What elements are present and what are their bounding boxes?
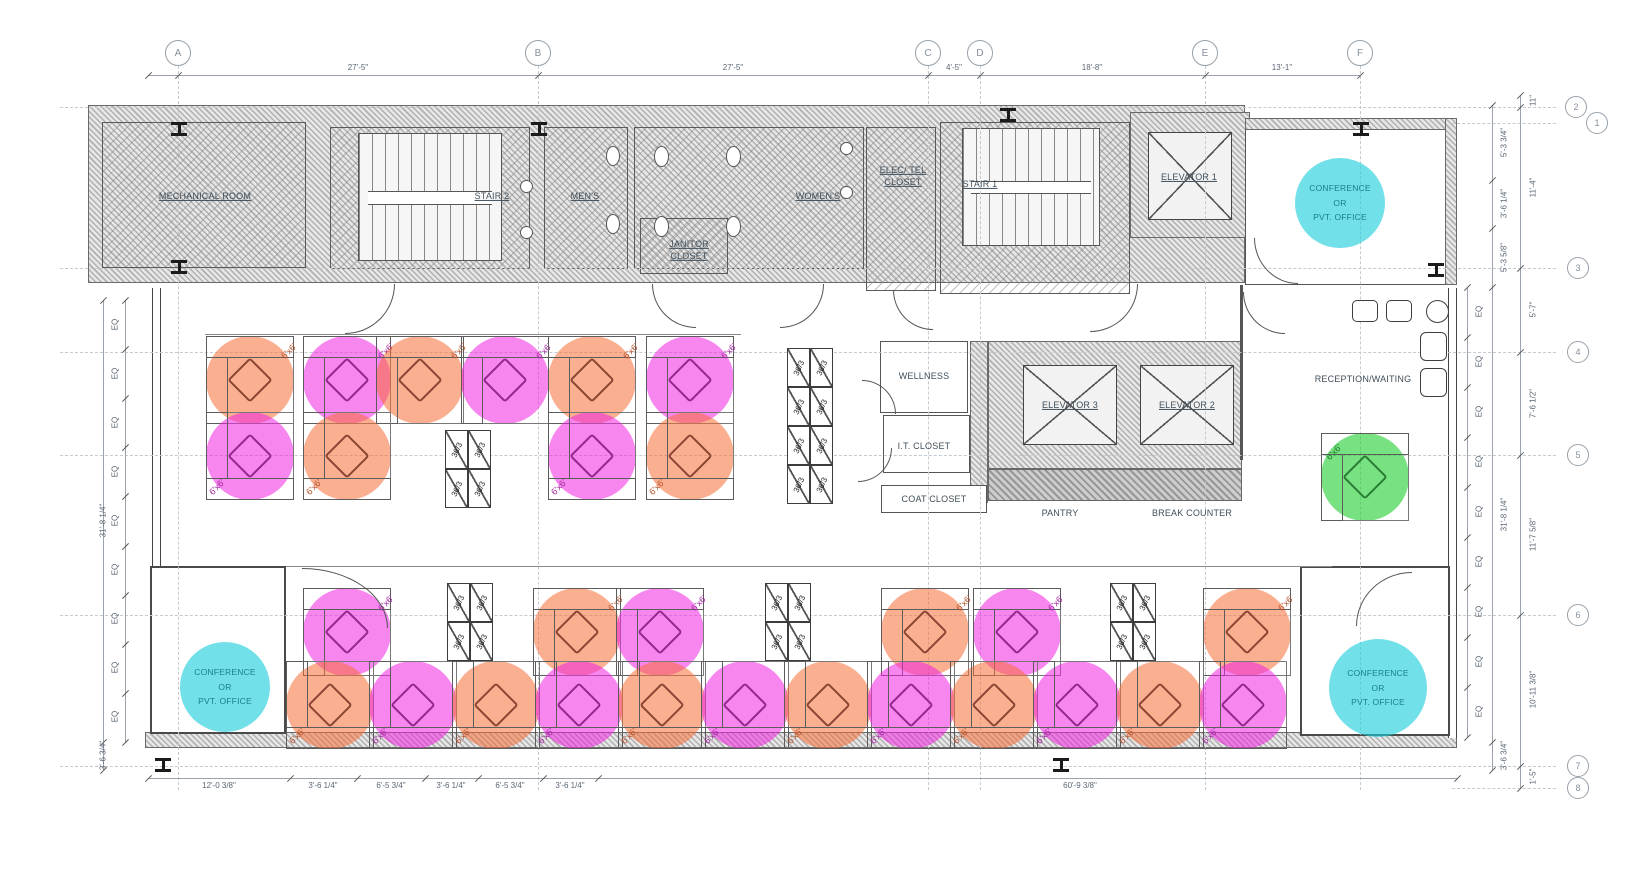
workstation-orange: 6'x6' bbox=[784, 661, 872, 749]
cabinet-size-label: 36/3 bbox=[791, 476, 806, 494]
conference-pvt-office-circle: CONFERENCEORPVT. OFFICE bbox=[1295, 158, 1385, 248]
upper-cluster-line bbox=[205, 334, 741, 335]
file-cabinet: 36/3 bbox=[445, 430, 468, 469]
right-mid-dimension-line bbox=[1492, 105, 1493, 770]
file-cabinet: 36/3 bbox=[468, 430, 491, 469]
file-cabinet: 36/3 bbox=[810, 465, 833, 504]
file-cabinet: 36/3 bbox=[810, 348, 833, 387]
cabinet-size-label: 36/3 bbox=[449, 480, 464, 498]
grid-bubble-6: 6 bbox=[1567, 604, 1589, 626]
stool bbox=[1352, 300, 1378, 322]
stool bbox=[1386, 300, 1412, 322]
workstation-magenta: 6'x6' bbox=[701, 661, 789, 749]
conference-pvt-office-circle: CONFERENCEORPVT. OFFICE bbox=[180, 642, 270, 732]
eq-dimension: EQ bbox=[1475, 597, 1484, 627]
grid-line-3 bbox=[60, 268, 1556, 269]
door-swing bbox=[652, 284, 696, 328]
eq-dimension: EQ bbox=[1475, 647, 1484, 677]
file-cabinet: 36/3 bbox=[447, 583, 470, 622]
cabinet-size-label: 36/3 bbox=[791, 359, 806, 377]
desk-surface bbox=[1116, 661, 1138, 728]
conference-label-line: OR bbox=[1333, 196, 1346, 210]
grid-bubble-2: 2 bbox=[1565, 96, 1587, 118]
workstation-orange: 6'x6' bbox=[646, 412, 734, 500]
grid-line-2 bbox=[60, 107, 1556, 108]
file-cabinet: 36/3 bbox=[447, 622, 470, 661]
room-label-mens: MEN'S bbox=[571, 190, 600, 202]
file-cabinet: 36/3 bbox=[1133, 583, 1156, 622]
desk-surface bbox=[535, 661, 557, 728]
cabinet-size-label: 36/3 bbox=[814, 437, 829, 455]
cabinet-size-label: 36/3 bbox=[472, 441, 487, 459]
cabinet-size-label: 36/3 bbox=[451, 594, 466, 612]
steel-column-icon bbox=[1428, 263, 1444, 277]
room-label-pantry: PANTRY bbox=[1042, 507, 1079, 519]
workstation-orange: 6'x6' bbox=[950, 661, 1038, 749]
right-mid-dimension: 31'-8 1/4" bbox=[1500, 480, 1509, 550]
steel-column-icon bbox=[155, 758, 171, 772]
workstation-magenta: 6'x6' bbox=[548, 412, 636, 500]
steel-column-icon bbox=[171, 260, 187, 274]
cabinet-size-label: 36/3 bbox=[474, 594, 489, 612]
conference-label-line: PVT. OFFICE bbox=[1351, 695, 1405, 709]
desk-surface bbox=[701, 661, 723, 728]
eq-dimension: EQ bbox=[111, 309, 120, 339]
right-outer-dimension-line bbox=[1520, 95, 1521, 788]
file-cabinet: 36/3 bbox=[470, 622, 493, 661]
grid-bubble-1: 1 bbox=[1586, 112, 1608, 134]
desk-surface bbox=[784, 661, 806, 728]
conference-label-line: OR bbox=[1371, 681, 1384, 695]
room-label-elevator3: ELEVATOR 3 bbox=[1042, 399, 1098, 411]
conference-pvt-office-circle: CONFERENCEORPVT. OFFICE bbox=[1329, 639, 1427, 737]
workstation-magenta: 6'x6' bbox=[535, 661, 623, 749]
workstation-orange: 6'x6' bbox=[376, 336, 464, 424]
grid-line-A bbox=[178, 66, 179, 790]
grid-bubble-7: 7 bbox=[1567, 755, 1589, 777]
left-eq-line bbox=[125, 300, 126, 742]
right-outer-dimension: 7'-6 1/2" bbox=[1529, 369, 1538, 439]
desk-surface bbox=[618, 661, 640, 728]
eq-dimension: EQ bbox=[1475, 397, 1484, 427]
grid-bubble-3: 3 bbox=[1567, 257, 1589, 279]
conference-label-line: CONFERENCE bbox=[1309, 181, 1371, 195]
room-label-wellness: WELLNESS bbox=[899, 370, 950, 382]
workstation-orange: 6'x6' bbox=[618, 661, 706, 749]
bottom-cluster-line bbox=[286, 566, 1332, 567]
sink-icon bbox=[840, 186, 853, 199]
desk-surface bbox=[950, 661, 972, 728]
steel-column-icon bbox=[531, 122, 547, 136]
eq-dimension: EQ bbox=[1475, 347, 1484, 377]
workstation-magenta: 6'x6' bbox=[646, 336, 734, 424]
conference-label-line: PVT. OFFICE bbox=[1313, 210, 1367, 224]
workstation-orange: 6'x6' bbox=[548, 336, 636, 424]
file-cabinet: 36/3 bbox=[1110, 583, 1133, 622]
toilet-icon bbox=[726, 146, 741, 167]
room-label-it-closet: I.T. CLOSET bbox=[898, 440, 951, 452]
sink-icon bbox=[520, 180, 533, 193]
conference-label-line: OR bbox=[218, 680, 231, 694]
eq-dimension: EQ bbox=[111, 358, 120, 388]
eq-dimension: EQ bbox=[1475, 497, 1484, 527]
cabinet-size-label: 36/3 bbox=[814, 398, 829, 416]
cabinet-size-label: 36/3 bbox=[451, 633, 466, 651]
elec-tel-closet-room bbox=[866, 127, 936, 291]
eq-dimension: EQ bbox=[1475, 447, 1484, 477]
workstation-orange: 6'x6' bbox=[452, 661, 540, 749]
desk-surface bbox=[1199, 661, 1221, 728]
conference-label-line: CONFERENCE bbox=[1347, 666, 1409, 680]
desk-surface bbox=[206, 412, 228, 479]
toilet-icon bbox=[726, 216, 741, 237]
door-swing bbox=[345, 284, 395, 334]
lounge-chair bbox=[1420, 368, 1447, 397]
steel-column-icon bbox=[1000, 108, 1016, 122]
cabinet-size-label: 36/3 bbox=[769, 633, 784, 651]
room-label-mechanical: MECHANICAL ROOM bbox=[159, 190, 251, 202]
file-cabinet: 36/3 bbox=[765, 622, 788, 661]
right-eq-line bbox=[1467, 287, 1468, 737]
eq-dimension: EQ bbox=[111, 407, 120, 437]
right-outer-dimension: 5'-7" bbox=[1529, 275, 1538, 345]
file-cabinet: 36/3 bbox=[810, 426, 833, 465]
conference-label-line: PVT. OFFICE bbox=[198, 694, 252, 708]
eq-dimension: EQ bbox=[1475, 547, 1484, 577]
right-outer-dimension: 11'-7 5/8" bbox=[1529, 500, 1538, 570]
bottom-dimension: 3'-6 1/4" bbox=[525, 781, 615, 790]
grid-bubble-E: E bbox=[1192, 40, 1218, 66]
toilet-icon bbox=[654, 216, 669, 237]
desk-surface bbox=[369, 661, 391, 728]
conference-tr-right-wall bbox=[1445, 118, 1457, 285]
file-cabinet: 36/3 bbox=[1110, 622, 1133, 661]
door-swing bbox=[1243, 292, 1285, 334]
desk-surface bbox=[548, 412, 570, 479]
grid-bubble-B: B bbox=[525, 40, 551, 66]
steel-column-icon bbox=[1053, 758, 1069, 772]
eq-dimension: EQ bbox=[111, 456, 120, 486]
top-dimension: 4'-5" bbox=[909, 63, 999, 72]
desk-surface bbox=[646, 412, 668, 479]
grid-bubble-4: 4 bbox=[1567, 341, 1589, 363]
cabinet-size-label: 36/3 bbox=[1114, 594, 1129, 612]
desk-surface bbox=[452, 661, 474, 728]
workstation-orange: 6'x6' bbox=[303, 412, 391, 500]
workstation-magenta: 6'x6' bbox=[1199, 661, 1287, 749]
door-swing bbox=[893, 290, 933, 330]
top-dimension: 13'-1" bbox=[1237, 63, 1327, 72]
reception-left-wall bbox=[1240, 285, 1243, 460]
workstation-orange: 6'x6' bbox=[286, 661, 374, 749]
eq-dimension: EQ bbox=[111, 555, 120, 585]
workstation-magenta: 6'x6' bbox=[461, 336, 549, 424]
desk-surface bbox=[1033, 661, 1055, 728]
top-dimension: 27'-5" bbox=[313, 63, 403, 72]
workstation-magenta: 6'x6' bbox=[369, 661, 457, 749]
file-cabinet: 36/3 bbox=[810, 387, 833, 426]
file-cabinet: 36/3 bbox=[468, 469, 491, 508]
grid-bubble-8: 8 bbox=[1567, 777, 1589, 799]
door-swing bbox=[302, 568, 388, 628]
eq-dimension: EQ bbox=[111, 702, 120, 732]
bottom-dimension: 12'-0 3/8" bbox=[174, 781, 264, 790]
desk-surface bbox=[303, 412, 325, 479]
toilet-icon bbox=[606, 146, 620, 166]
grid-bubble-F: F bbox=[1347, 40, 1373, 66]
top-dimension: 18'-8" bbox=[1047, 63, 1137, 72]
desk-surface bbox=[461, 357, 483, 424]
toilet-icon bbox=[606, 214, 620, 234]
room-label-elevator1: ELEVATOR 1 bbox=[1161, 171, 1217, 183]
floor-plan: MECHANICAL ROOM STAIR 2 MEN'S JANITOR CL… bbox=[0, 0, 1630, 888]
cabinet-size-label: 36/3 bbox=[769, 594, 784, 612]
toilet-icon bbox=[654, 146, 669, 167]
cabinet-size-label: 36/3 bbox=[792, 633, 807, 651]
conference-label-line: CONFERENCE bbox=[194, 665, 256, 679]
cabinet-size-label: 36/3 bbox=[449, 441, 464, 459]
file-cabinet: 36/3 bbox=[445, 469, 468, 508]
sink-icon bbox=[840, 142, 853, 155]
steel-column-icon bbox=[1353, 122, 1369, 136]
workstation-orange: 6'x6' bbox=[1116, 661, 1204, 749]
file-cabinet: 36/3 bbox=[787, 387, 810, 426]
right-mid-dimension: 3'-6 3/4" bbox=[1500, 721, 1509, 791]
file-cabinet: 36/3 bbox=[765, 583, 788, 622]
workstation-magenta: 6'x6' bbox=[867, 661, 955, 749]
room-label-electel: ELEC/ TEL CLOSET bbox=[880, 164, 927, 188]
workstation-orange: 6'x6' bbox=[206, 336, 294, 424]
file-cabinet: 36/3 bbox=[470, 583, 493, 622]
door-swing bbox=[780, 284, 824, 328]
file-cabinet: 36/3 bbox=[788, 583, 811, 622]
room-label-elevator2: ELEVATOR 2 bbox=[1159, 399, 1215, 411]
left-overall-dimension: 3'-6 3/4" bbox=[99, 721, 108, 791]
desk-surface bbox=[286, 661, 308, 728]
room-label-stair2: STAIR 2 bbox=[475, 190, 510, 202]
cabinet-size-label: 36/3 bbox=[472, 480, 487, 498]
eq-dimension: EQ bbox=[111, 604, 120, 634]
desk-surface bbox=[1321, 454, 1343, 521]
workstation-magenta: 6'x6' bbox=[1033, 661, 1121, 749]
top-dimension: 27'-5" bbox=[688, 63, 778, 72]
top-dimension-line bbox=[148, 75, 1360, 76]
cabinet-size-label: 36/3 bbox=[1137, 633, 1152, 651]
bottom-dimension: 60'-9 3/8" bbox=[1035, 781, 1125, 790]
workstation-magenta: 6'x6' bbox=[206, 412, 294, 500]
cabinet-size-label: 36/3 bbox=[1137, 594, 1152, 612]
cabinet-size-label: 36/3 bbox=[474, 633, 489, 651]
file-cabinet: 36/3 bbox=[1133, 622, 1156, 661]
eq-dimension: EQ bbox=[1475, 697, 1484, 727]
right-mid-dimension: 5'-3 5/8" bbox=[1500, 223, 1509, 293]
eq-dimension: EQ bbox=[111, 653, 120, 683]
eq-dimension: EQ bbox=[111, 506, 120, 536]
round-table bbox=[1426, 300, 1449, 323]
lounge-chair bbox=[1420, 332, 1447, 361]
file-cabinet: 36/3 bbox=[787, 426, 810, 465]
room-label-reception: RECEPTION/WAITING bbox=[1315, 373, 1412, 385]
file-cabinet: 36/3 bbox=[787, 348, 810, 387]
cabinet-size-label: 36/3 bbox=[814, 359, 829, 377]
pantry-break-counter bbox=[988, 469, 1242, 501]
door-swing bbox=[1090, 284, 1138, 332]
room-label-womens: WOMEN'S bbox=[796, 190, 841, 202]
conference-tr-top-wall bbox=[1245, 118, 1457, 130]
right-outer-dimension: 10'-11 3/8" bbox=[1529, 655, 1538, 725]
desk-surface bbox=[867, 661, 889, 728]
right-mid-dimension: 5'-3 3/4" bbox=[1500, 108, 1509, 178]
eq-dimension: EQ bbox=[1475, 297, 1484, 327]
cabinet-size-label: 36/3 bbox=[814, 476, 829, 494]
right-outer-dimension: 11" bbox=[1529, 66, 1538, 136]
steel-column-icon bbox=[171, 122, 187, 136]
grid-line-7 bbox=[60, 766, 1556, 767]
sink-icon bbox=[520, 226, 533, 239]
cabinet-size-label: 36/3 bbox=[791, 437, 806, 455]
door-swing bbox=[858, 448, 892, 482]
bottom-dimension-line bbox=[148, 778, 1457, 779]
file-cabinet: 36/3 bbox=[787, 465, 810, 504]
room-label-janitor: JANITOR CLOSET bbox=[669, 238, 709, 262]
cabinet-size-label: 36/3 bbox=[792, 594, 807, 612]
file-cabinet: 36/3 bbox=[788, 622, 811, 661]
grid-bubble-5: 5 bbox=[1567, 444, 1589, 466]
right-outer-dimension: 11'-4" bbox=[1529, 153, 1538, 223]
cabinet-size-label: 36/3 bbox=[791, 398, 806, 416]
workstation-green: 6'x6' bbox=[1321, 433, 1409, 521]
room-label-coat-closet: COAT CLOSET bbox=[902, 493, 967, 505]
right-outer-dimension: 1'-5" bbox=[1529, 742, 1538, 812]
room-label-stair1: STAIR 1 bbox=[963, 178, 998, 190]
room-label-break-counter: BREAK COUNTER bbox=[1152, 507, 1232, 519]
cabinet-size-label: 36/3 bbox=[1114, 633, 1129, 651]
grid-bubble-A: A bbox=[165, 40, 191, 66]
left-overall-dimension: 31'-8 1/4" bbox=[99, 486, 108, 556]
elevator-core-left-strip bbox=[970, 341, 988, 503]
